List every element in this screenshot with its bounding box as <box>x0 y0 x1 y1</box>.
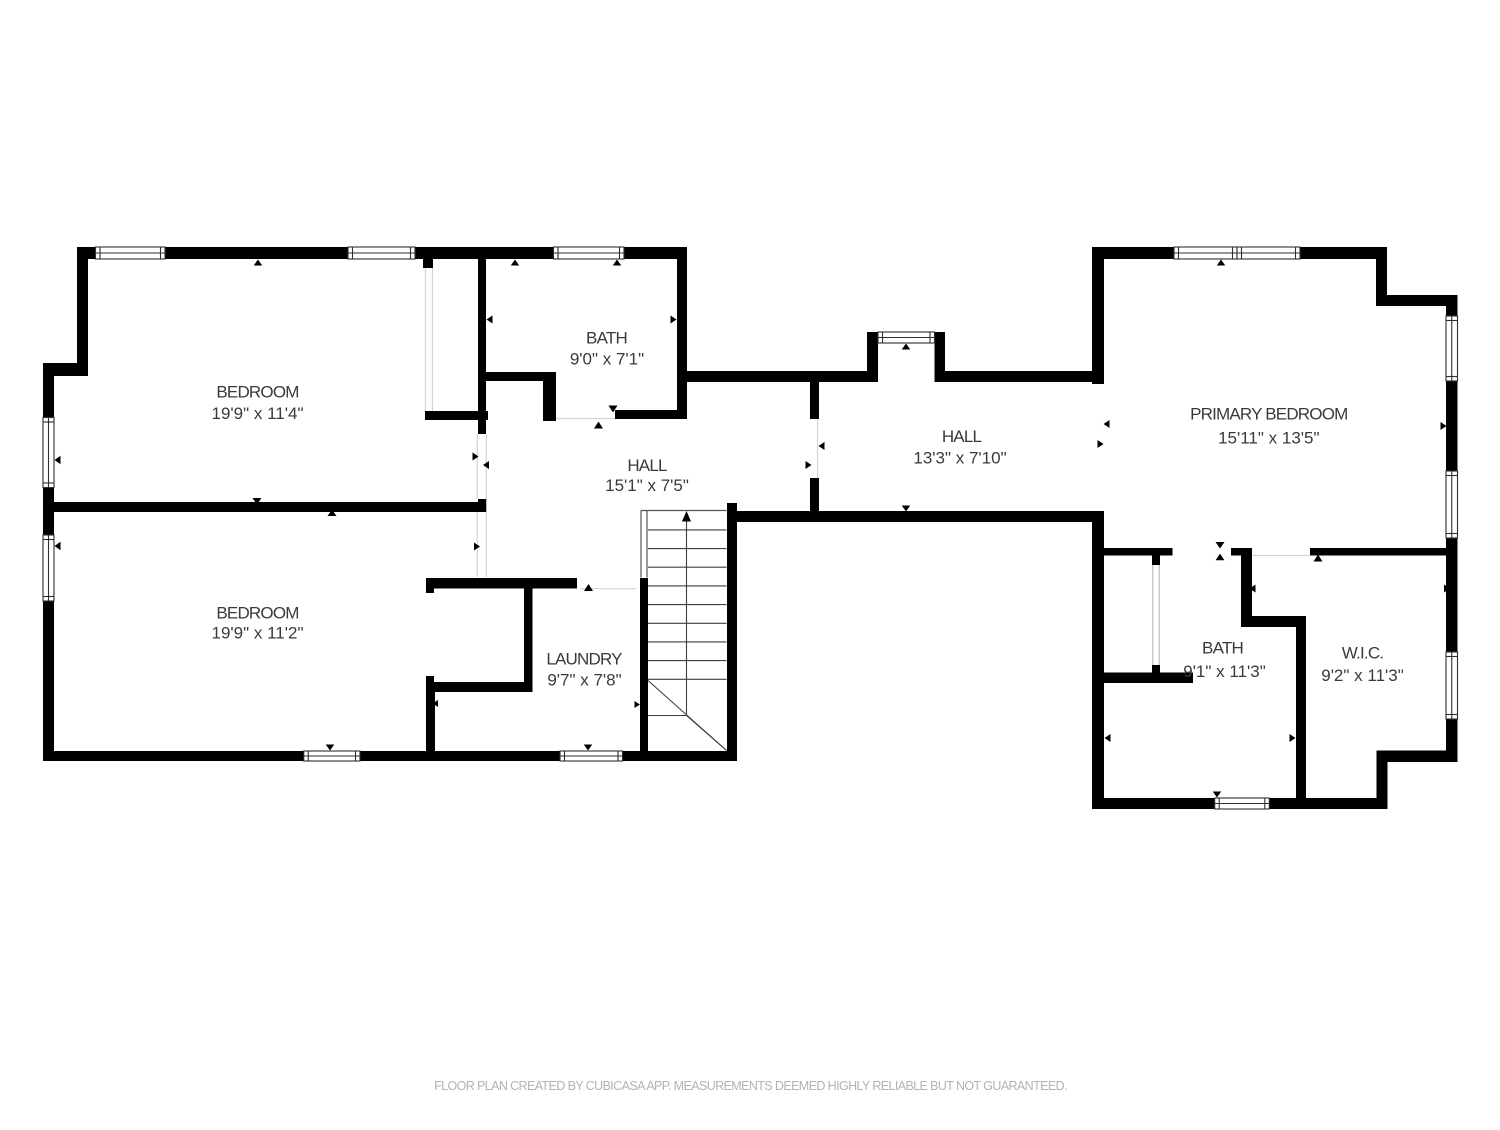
svg-text:19'9" x 11'4": 19'9" x 11'4" <box>212 404 304 423</box>
svg-text:BEDROOM: BEDROOM <box>216 604 298 623</box>
svg-text:13'3" x 7'10": 13'3" x 7'10" <box>913 448 1006 467</box>
svg-text:9'1" x 11'3": 9'1" x 11'3" <box>1183 662 1266 681</box>
svg-text:15'11" x 13'5": 15'11" x 13'5" <box>1218 428 1319 447</box>
svg-text:LAUNDRY: LAUNDRY <box>546 650 622 669</box>
svg-text:15'1" x 7'5": 15'1" x 7'5" <box>605 476 689 495</box>
svg-text:W.I.C.: W.I.C. <box>1342 643 1384 662</box>
svg-text:PRIMARY BEDROOM: PRIMARY BEDROOM <box>1190 404 1347 423</box>
svg-text:BATH: BATH <box>1202 638 1243 657</box>
svg-text:9'7" x 7'8": 9'7" x 7'8" <box>547 671 621 690</box>
svg-text:BATH: BATH <box>586 329 627 348</box>
svg-text:HALL: HALL <box>627 456 667 475</box>
svg-text:FLOOR PLAN CREATED BY CUBICASA: FLOOR PLAN CREATED BY CUBICASA APP. MEAS… <box>434 1079 1067 1093</box>
svg-text:9'0" x 7'1": 9'0" x 7'1" <box>570 350 644 369</box>
svg-text:HALL: HALL <box>942 427 982 446</box>
svg-text:BEDROOM: BEDROOM <box>216 382 298 401</box>
svg-text:19'9" x 11'2": 19'9" x 11'2" <box>212 624 304 643</box>
svg-text:9'2" x 11'3": 9'2" x 11'3" <box>1321 666 1404 685</box>
